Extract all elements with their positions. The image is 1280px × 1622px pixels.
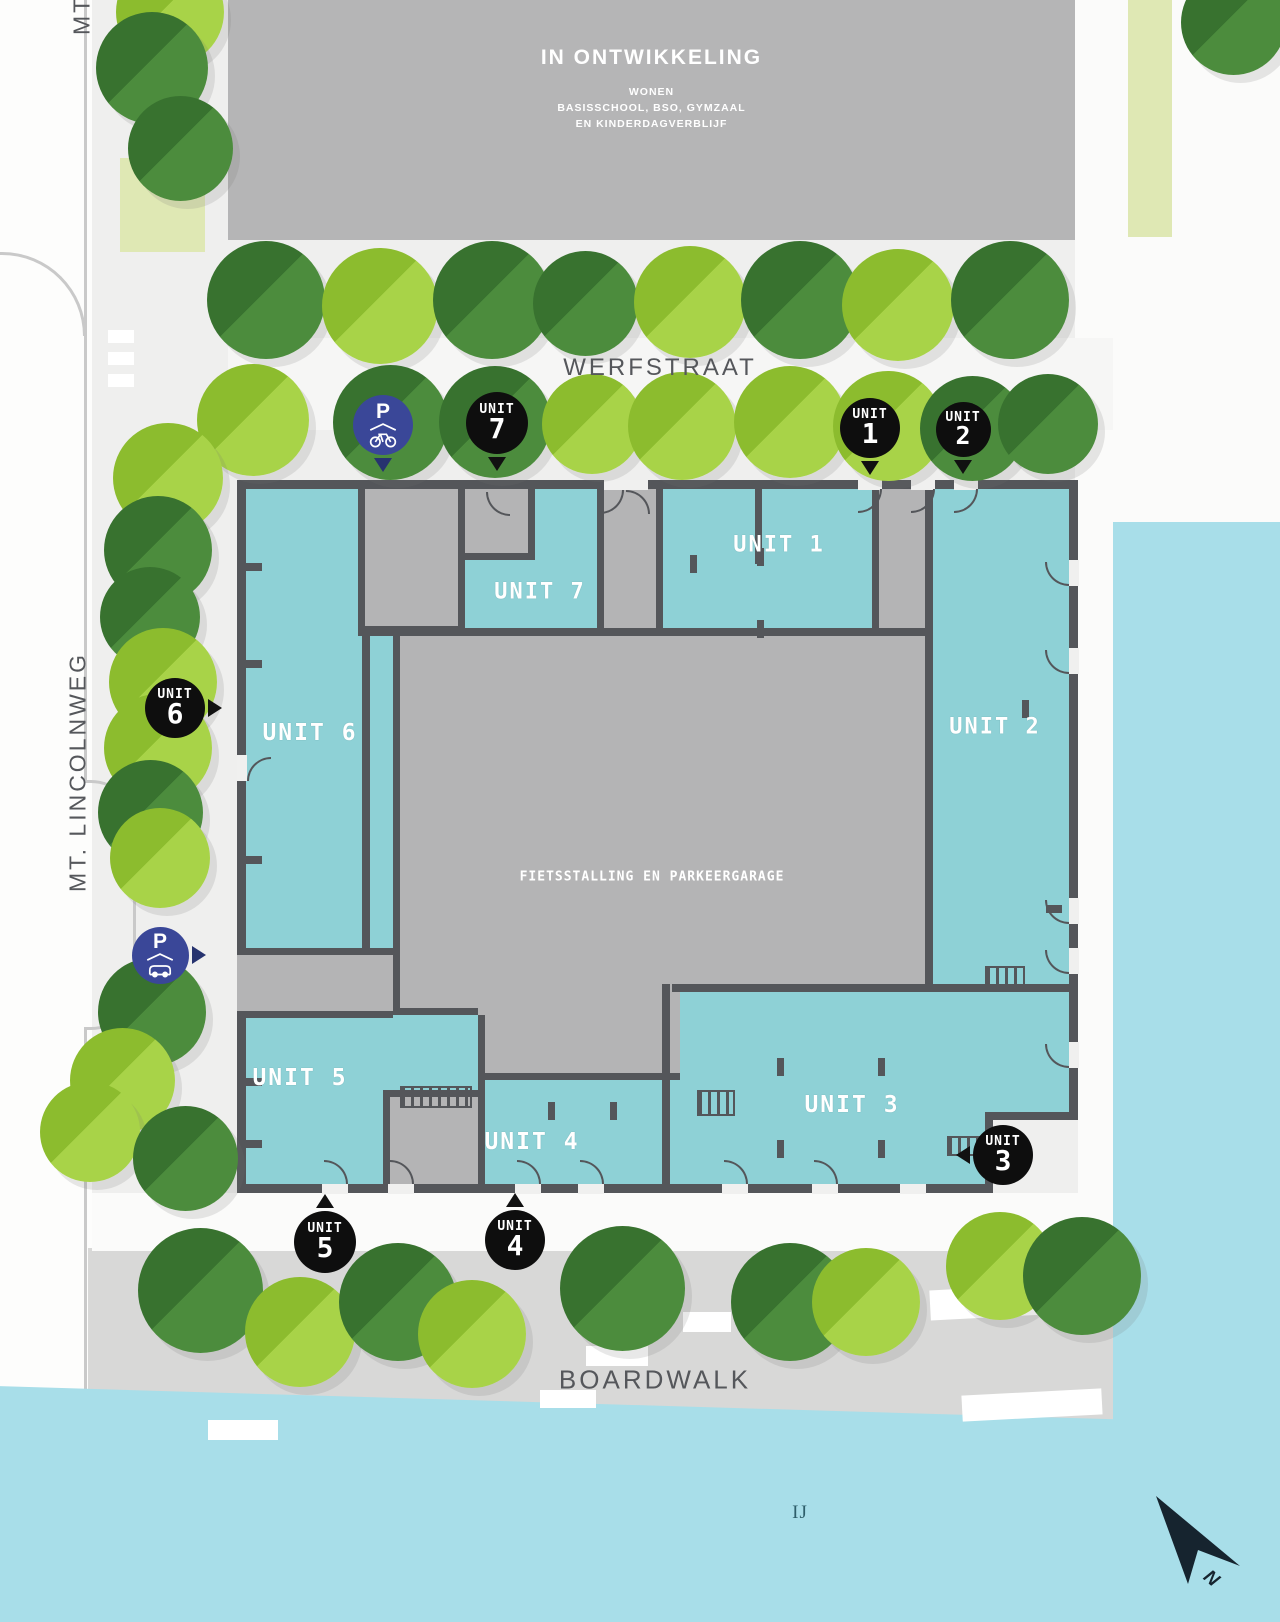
interior-wall: [755, 489, 762, 564]
tree: [100, 567, 200, 667]
marker-pointer-down: [374, 458, 392, 472]
marker-pointer-right: [192, 946, 206, 964]
notch-wall: [985, 1112, 993, 1193]
interior-wall: [478, 1015, 485, 1184]
plan-gray-block: [358, 489, 465, 633]
building-notch: [993, 1120, 1078, 1193]
interior-wall: [362, 633, 370, 948]
road-marking: [108, 352, 134, 365]
stair-block: [383, 1090, 478, 1184]
curb-driveway-bump: [84, 780, 136, 1030]
plan-gray-block: [872, 489, 930, 633]
marker-pointer-down: [954, 460, 972, 474]
tree: [116, 0, 224, 66]
garage-label: FIETSSTALLING EN PARKEERGARAGE: [520, 870, 785, 885]
parking-garage-area: [680, 628, 928, 990]
development-line: WONEN: [629, 84, 674, 100]
left-road: [0, 0, 92, 1400]
right-sidewalk-area: [1075, 0, 1280, 525]
parking-garage-area: [478, 628, 680, 1080]
tree: [104, 694, 212, 802]
marker-pointer-right: [208, 699, 222, 717]
grass-patch-left: [120, 158, 205, 252]
interior-wall: [925, 489, 933, 990]
marker-unit-number: 6: [167, 701, 184, 728]
water-ij-south: [0, 1385, 1280, 1622]
grass-patch-right: [1128, 0, 1172, 237]
marker-pointer-down: [488, 457, 506, 471]
building-east-sidewalk: [1078, 480, 1113, 1193]
interior-wall: [672, 984, 1078, 992]
site-plan-canvas: IN ONTWIKKELING WONEN BASISSCHOOL, BSO, …: [0, 0, 1280, 1622]
tree: [104, 496, 212, 604]
notch-wall: [985, 1112, 1078, 1120]
curb-line-upper: [84, 0, 87, 780]
garage-entrance-corridor: [237, 948, 393, 1018]
parking-p-label: P: [153, 931, 167, 952]
tree: [96, 12, 208, 124]
development-block: IN ONTWIKKELING WONEN BASISSCHOOL, BSO, …: [228, 0, 1075, 240]
development-line: EN KINDERDAGVERBLIJF: [576, 116, 728, 132]
car-icon: [143, 952, 177, 980]
interior-wall: [358, 628, 930, 636]
parking-garage-area: [393, 628, 478, 1015]
marker-pointer-down: [861, 461, 879, 475]
water-label: IJ: [792, 1502, 808, 1524]
curb-line-lower: [84, 1030, 87, 1390]
plan-gray-block: [465, 489, 535, 560]
marker-unit-6: UNIT6: [145, 678, 205, 738]
tree: [109, 628, 217, 736]
tree: [113, 423, 223, 533]
building-south-sidewalk: [92, 1193, 1113, 1251]
north-arrow: N: [1148, 1492, 1248, 1602]
north-arrow-icon: [1148, 1492, 1248, 1602]
development-line: BASISSCHOOL, BSO, GYMZAAL: [557, 100, 745, 116]
development-title: IN ONTWIKKELING: [541, 46, 762, 70]
interior-wall: [662, 984, 670, 1184]
plan-gray-block: [597, 489, 663, 633]
road-marking: [108, 374, 134, 387]
marker-parking-car: P: [132, 927, 189, 984]
marker-unit-word: UNIT: [157, 688, 192, 701]
werfstraat-road: [228, 338, 1113, 430]
road-marking: [108, 330, 134, 343]
